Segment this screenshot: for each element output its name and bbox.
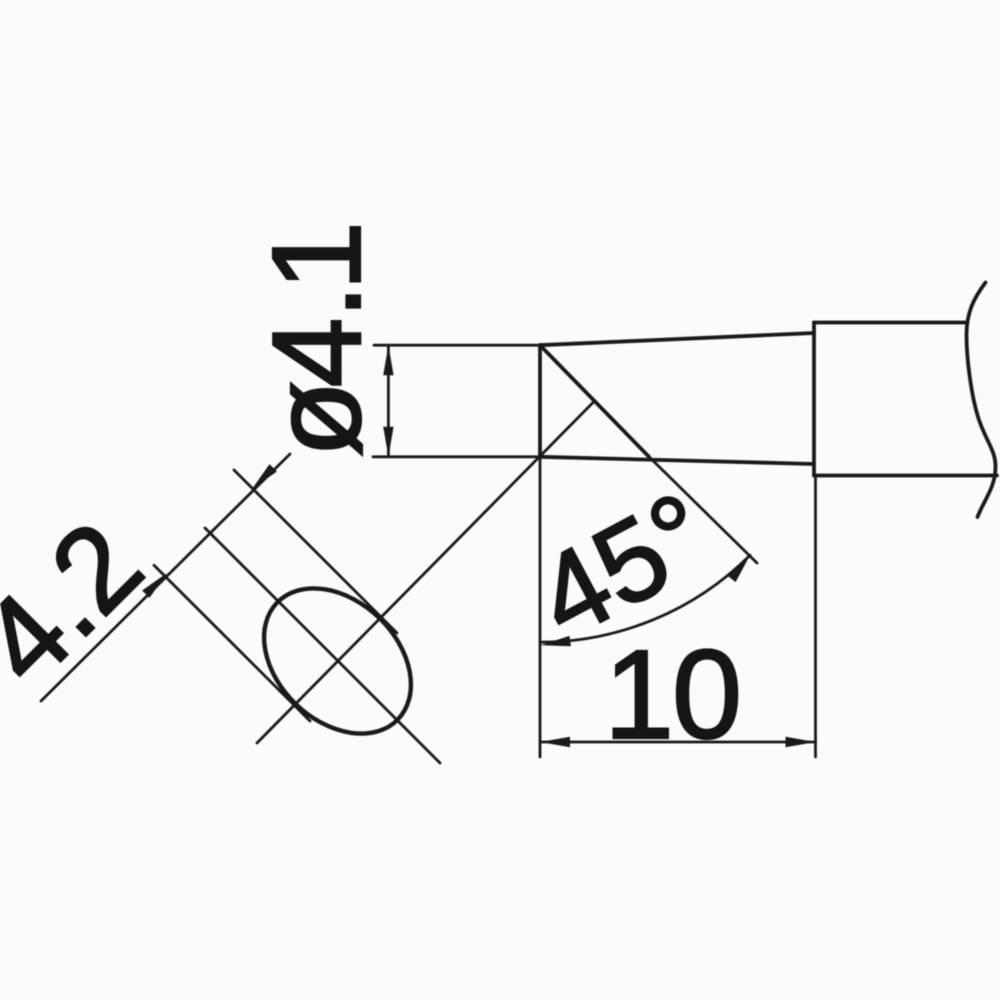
svg-text:4.2: 4.2 <box>0 497 167 710</box>
svg-text:10: 10 <box>604 624 742 765</box>
svg-text:ø4.1: ø4.1 <box>246 221 387 458</box>
